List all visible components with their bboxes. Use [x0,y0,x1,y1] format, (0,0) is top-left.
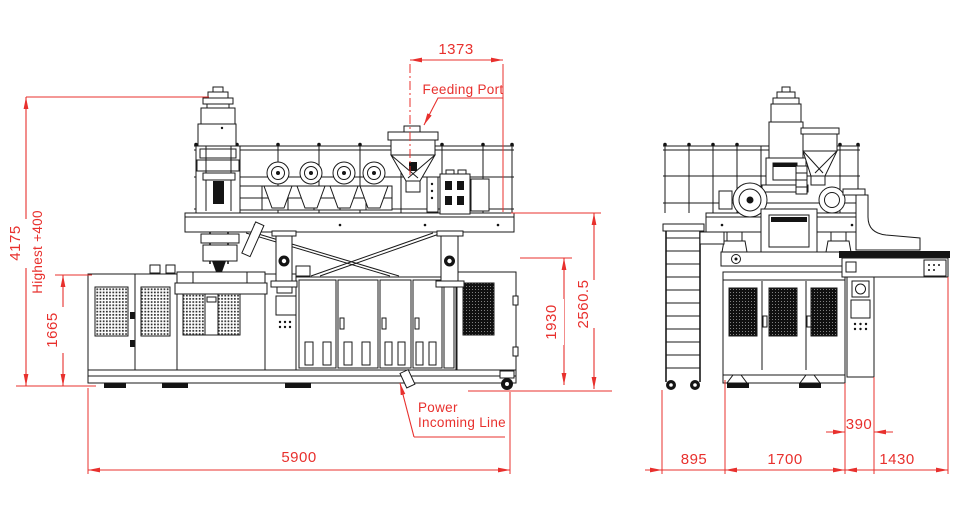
conveyor [839,251,950,277]
label-feeding-port: Feeding Port [423,82,504,97]
dim-conveyor-extension: 1430 [879,451,914,468]
technical-drawing-canvas: 4175 Highest +400 1665 1373 Feeding Port… [0,0,980,506]
side-view [663,87,950,390]
label-power-line-2: Incoming Line [418,415,506,430]
accumulator-tower [196,87,240,213]
dim-highest-note: Highest +400 [30,210,45,294]
cabinet-doors [296,277,456,370]
dim-body-height: 1930 [543,304,560,339]
machine-dimension-drawing: 4175 Highest +400 1665 1373 Feeding Port… [0,0,980,506]
side-body [723,272,845,388]
dim-overall-length: 5900 [281,449,316,466]
right-cabinet [457,272,518,378]
label-power-line-1: Power [418,400,458,415]
platform-deck [185,213,514,232]
dim-platform-height: 2560.5 [575,280,592,329]
access-ladder [663,224,724,390]
dim-feeding-port-offset: 1373 [438,41,473,58]
machine-base [88,370,516,390]
side-control-panel [847,276,874,377]
dim-ladder-depth: 895 [681,451,708,468]
dim-machine-depth: 1700 [767,451,802,468]
side-accumulator-tower [762,87,808,194]
dim-panel-offset: 390 [846,416,873,433]
dim-overall-height: 4175 [7,225,24,260]
dim-cabinet-height: 1665 [44,312,61,347]
front-view [88,87,518,390]
